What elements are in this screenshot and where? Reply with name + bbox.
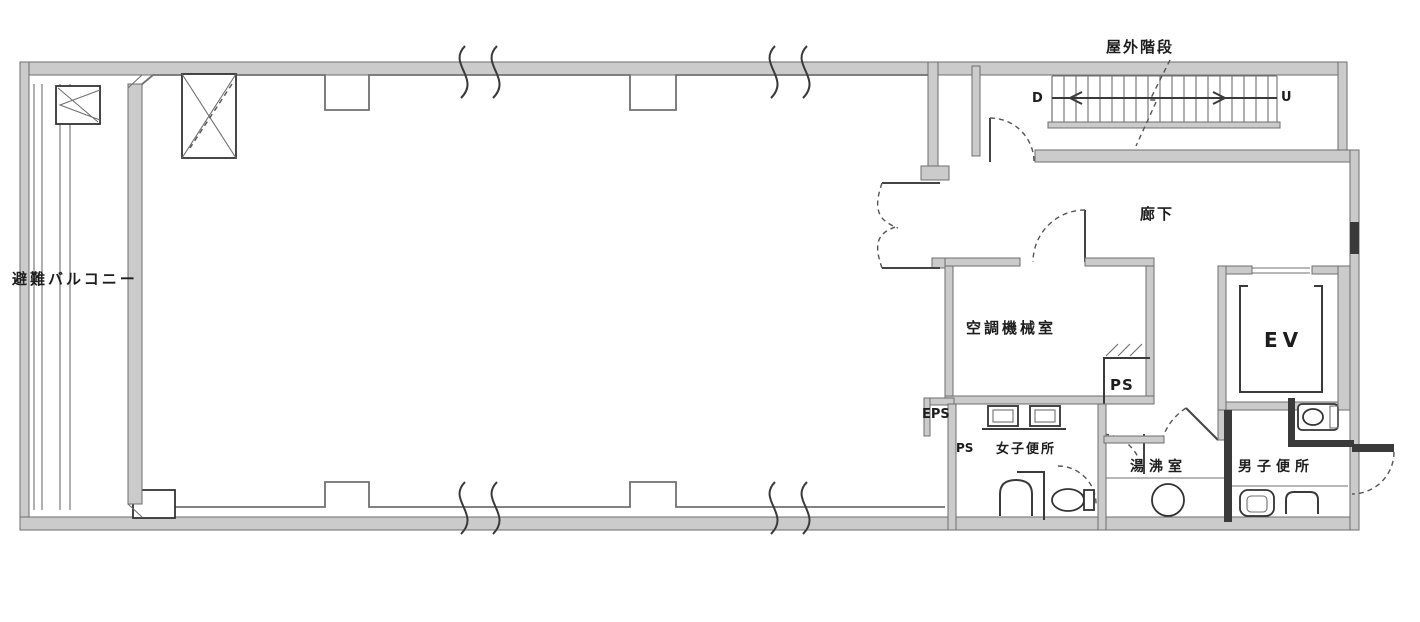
stall-partition <box>1017 472 1044 520</box>
shaft-hatch-icon <box>182 74 236 158</box>
label-machine-room: 空調機械室 <box>966 319 1056 337</box>
kitchenette-door-arc <box>1162 408 1186 440</box>
label-eps: EPS <box>922 407 950 422</box>
right-wall-window <box>1350 222 1359 254</box>
floor-plan-drawing: 屋外階段 D U 廊下 空調機械室 PS EV EPS PS 女子便所 湯沸室 … <box>0 0 1420 622</box>
label-ps-small: PS <box>956 441 973 455</box>
label-corridor: 廊下 <box>1140 205 1174 223</box>
washbasin-icon <box>1286 492 1318 514</box>
elevator-door <box>1252 268 1310 273</box>
label-elevator: EV <box>1264 328 1303 352</box>
kitchenette <box>1106 478 1224 516</box>
toilet-icon <box>1052 489 1084 511</box>
label-stair-up: U <box>1281 90 1292 105</box>
machine-room-door-arc <box>1033 210 1085 262</box>
label-ps: PS <box>1110 376 1134 394</box>
label-mens-toilet: 男子便所 <box>1238 458 1314 475</box>
label-outdoor-stairs: 屋外階段 <box>1106 38 1174 56</box>
slop-sink-icon <box>1000 480 1032 516</box>
wall-break-symbols <box>460 46 810 534</box>
label-stair-down: D <box>1032 91 1043 106</box>
evacuation-balcony <box>34 74 236 517</box>
office-inner-walls <box>133 75 945 518</box>
label-womens-toilet: 女子便所 <box>996 441 1056 457</box>
label-kitchenette: 湯沸室 <box>1130 458 1187 475</box>
evac-hatch-icon <box>56 86 100 124</box>
office-double-door-arc <box>878 183 898 268</box>
label-evac-balcony: 避難バルコニー <box>12 270 138 288</box>
womens-toilet <box>982 406 1094 520</box>
sink-icon <box>1152 484 1184 516</box>
floor-plan: 屋外階段 D U 廊下 空調機械室 PS EV EPS PS 女子便所 湯沸室 … <box>0 0 1420 622</box>
mens-door-leaf <box>1352 444 1394 452</box>
stair-landing-door-arc <box>990 118 1034 162</box>
